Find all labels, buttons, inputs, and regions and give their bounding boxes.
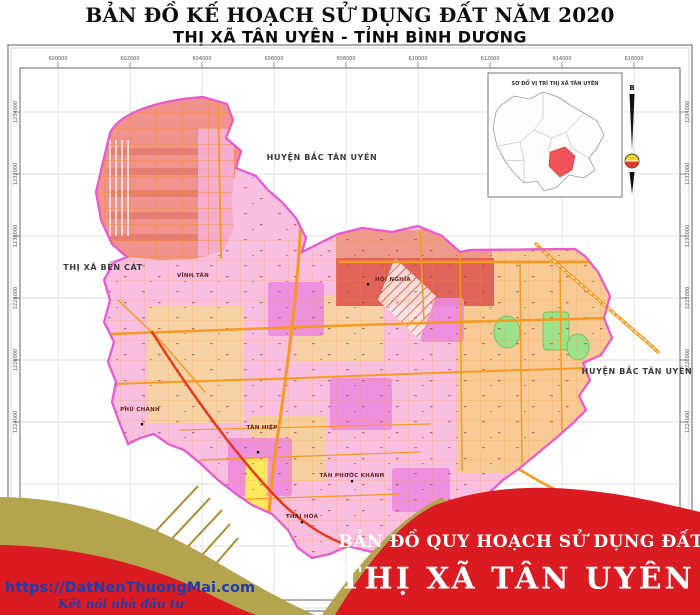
coord-label: 604000 xyxy=(192,56,211,62)
coord-label: 610000 xyxy=(408,56,427,62)
coord-label: 1230000 xyxy=(685,225,691,247)
coord-label: 614000 xyxy=(552,56,571,62)
coord-label: 606000 xyxy=(264,56,283,62)
coord-label: 1234000 xyxy=(13,101,19,123)
north-arrow-label: B xyxy=(629,84,634,92)
coord-label: 1230000 xyxy=(13,225,19,247)
banner-title: THỊ XÃ TÂN UYÊN xyxy=(339,562,695,597)
top-coordinate-labels: 600000 602000 604000 606000 608000 61000… xyxy=(48,56,643,62)
coord-label: 1226000 xyxy=(13,349,19,371)
coord-label: 602000 xyxy=(120,56,139,62)
place-label-tan-phuoc-khanh: TÂN PHƯỚC KHÁNH xyxy=(320,472,385,479)
left-coordinate-labels: 1234000 1232000 1230000 1228000 1226000 … xyxy=(13,101,19,433)
place-label-vinh-tan: VĨNH TÂN xyxy=(177,272,209,279)
map-canvas: 600000 602000 604000 606000 608000 61000… xyxy=(0,0,700,615)
place-label-hoi-nghia: HỘI NGHĨA xyxy=(375,276,411,283)
coord-label: 1224000 xyxy=(685,411,691,433)
coord-label: 608000 xyxy=(336,56,355,62)
coord-label: 1234000 xyxy=(685,101,691,123)
coord-label: 1232000 xyxy=(13,163,19,185)
banner-subtitle: BẢN ĐỒ QUY HOẠCH SỬ DỤNG ĐẤT xyxy=(338,532,700,552)
website-link[interactable]: https://DatNenThuongMai.com xyxy=(5,580,255,596)
right-coordinate-labels: 1234000 1232000 1230000 1228000 1226000 … xyxy=(685,101,691,433)
coord-label: 616000 xyxy=(624,56,643,62)
coord-label: 600000 xyxy=(48,56,67,62)
place-label-thai-hoa: THÁI HÒA xyxy=(286,513,319,520)
coord-label: 612000 xyxy=(480,56,499,62)
place-label-tan-hiep: TÂN HIỆP xyxy=(247,423,278,431)
coord-label: 1228000 xyxy=(685,287,691,309)
inset-location-map: SƠ ĐỒ VỊ TRÍ THỊ XÃ TÂN UYÊN xyxy=(488,73,622,197)
coord-label: 1224000 xyxy=(13,411,19,433)
website-tagline: Kết nối nhà đầu tư xyxy=(58,597,184,611)
place-label-phu-chanh: PHÚ CHÁNH xyxy=(120,406,160,413)
coord-label: 1232000 xyxy=(685,163,691,185)
coord-label: 1228000 xyxy=(13,287,19,309)
